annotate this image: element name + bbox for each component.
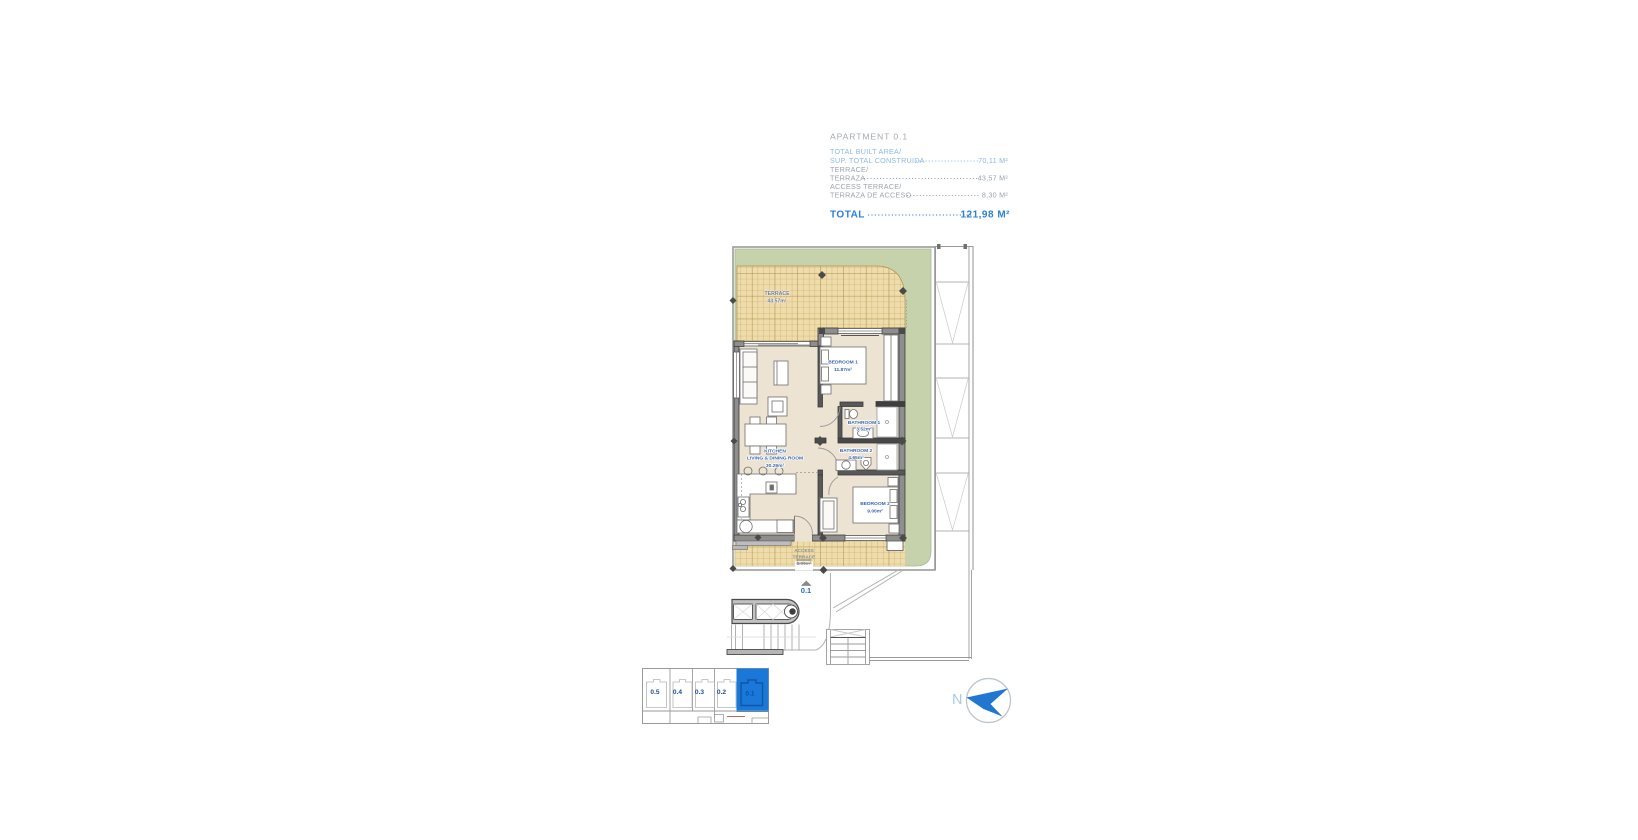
svg-text:4.65m²: 4.65m² [848, 455, 864, 461]
svg-text:KITCHEN: KITCHEN [764, 449, 786, 455]
svg-text:TERRACE: TERRACE [764, 291, 790, 297]
svg-text:121,98 M²: 121,98 M² [960, 210, 1010, 221]
svg-text:8.30m²: 8.30m² [797, 561, 812, 566]
svg-text:70,11 M²: 70,11 M² [978, 156, 1008, 165]
svg-text:TERRACE: TERRACE [793, 555, 816, 560]
svg-text:8,30 M²: 8,30 M² [982, 191, 1008, 200]
svg-text:BEDROOM 2: BEDROOM 2 [860, 501, 890, 507]
svg-text:0.2: 0.2 [717, 689, 726, 696]
svg-text:3.52m²: 3.52m² [856, 427, 872, 433]
svg-text:BEDROOM 1: BEDROOM 1 [828, 360, 858, 366]
svg-text:APARTMENT 0.1: APARTMENT 0.1 [830, 132, 908, 142]
svg-text:43,57 M²: 43,57 M² [978, 174, 1009, 183]
svg-text:BATHROOM 2: BATHROOM 2 [840, 448, 873, 454]
svg-text:11.87m²: 11.87m² [834, 367, 852, 373]
svg-text:0.3: 0.3 [695, 689, 704, 696]
svg-text:0.4: 0.4 [673, 689, 682, 696]
svg-text:9.00m²: 9.00m² [867, 509, 883, 515]
svg-text:43.57m²: 43.57m² [767, 299, 787, 305]
svg-text:30.29m²: 30.29m² [766, 463, 785, 469]
svg-text:0.1: 0.1 [745, 691, 754, 698]
svg-text:ACCESS: ACCESS [794, 548, 814, 553]
svg-text:TERRAZA DE ACCESO: TERRAZA DE ACCESO [830, 191, 911, 200]
svg-text:LIVING & DINING ROOM: LIVING & DINING ROOM [747, 456, 803, 462]
svg-text:0.1: 0.1 [801, 586, 812, 595]
svg-text:N: N [952, 692, 962, 708]
svg-text:TOTAL BUILT AREA/: TOTAL BUILT AREA/ [830, 147, 901, 156]
svg-text:0.5: 0.5 [650, 689, 659, 696]
svg-text:BATHROOM 1: BATHROOM 1 [848, 420, 881, 426]
svg-text:TOTAL: TOTAL [830, 210, 865, 221]
svg-text:SUP. TOTAL CONSTRUIDA: SUP. TOTAL CONSTRUIDA [830, 156, 925, 165]
